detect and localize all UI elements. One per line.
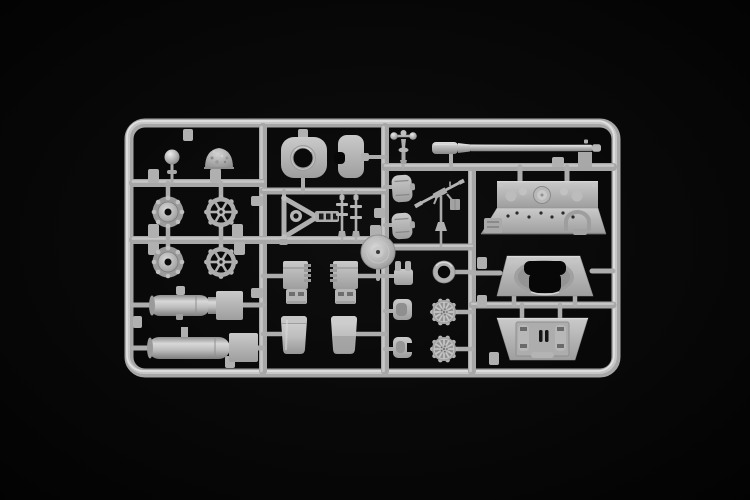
runner-vertical-right bbox=[471, 167, 473, 371]
drive-sprocket-upper bbox=[152, 196, 185, 229]
tire-ring-part bbox=[433, 261, 455, 283]
stowage-drum-right bbox=[331, 316, 357, 354]
hull-plate-part bbox=[497, 318, 588, 360]
runner-horizontal-right-bottom bbox=[472, 304, 613, 305]
gun-mantlet-part bbox=[281, 137, 327, 178]
stowage-drum-left bbox=[281, 316, 307, 354]
runner-horizontal-mid bbox=[263, 190, 385, 191]
runner-horizontal-mid-2 bbox=[385, 246, 472, 247]
dished-wheel-part bbox=[361, 235, 395, 269]
stowage-box-left bbox=[283, 261, 311, 304]
engine-deck-part bbox=[481, 181, 606, 235]
idler-wheel-lower bbox=[204, 245, 238, 279]
turret-roof-part bbox=[497, 256, 593, 296]
idler-wheel-upper bbox=[204, 195, 238, 229]
dished-fitting-part bbox=[393, 299, 412, 320]
runner-horizontal-left-2 bbox=[133, 239, 385, 241]
drive-sprocket-lower bbox=[152, 246, 185, 279]
notched-fitting-part bbox=[393, 337, 414, 358]
sprue-photo bbox=[0, 0, 750, 500]
